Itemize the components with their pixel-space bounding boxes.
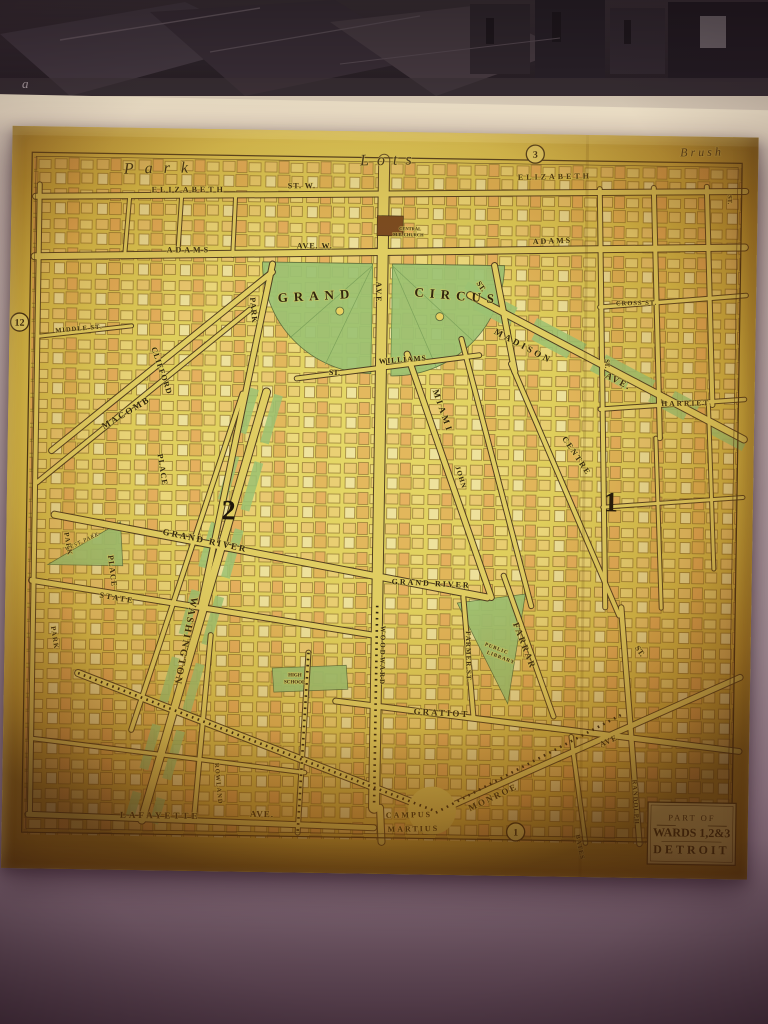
detroit-ward-map-canvas: ParkLotsBrushELIZABETHST. W.ELIZABETHADA… bbox=[1, 126, 759, 880]
gallery-wall: ParkLotsBrushELIZABETHST. W.ELIZABETHADA… bbox=[0, 96, 768, 1024]
cartouche-line2: WARDS 1,2&3 bbox=[653, 825, 731, 840]
street-label: ADAMS bbox=[533, 236, 573, 246]
street-label: Park bbox=[123, 159, 199, 177]
street-label: ST. bbox=[603, 359, 610, 369]
street-label: ELIZABETH bbox=[518, 171, 592, 181]
street-label: AVE bbox=[374, 282, 383, 304]
street-label: ELIZABETH bbox=[152, 185, 226, 194]
street-label: SCHOOL bbox=[284, 680, 306, 685]
street-label: ADAMS bbox=[167, 245, 211, 254]
circled-number: 12 bbox=[10, 313, 28, 331]
street-label: Lots bbox=[359, 151, 420, 169]
rooftops-photo: a bbox=[0, 0, 768, 96]
photo-of-detroit-ward-map-on-wall: a ParkLotsBrushELIZABETHST. W.ELIZABETHA… bbox=[0, 0, 768, 1024]
park-fountain bbox=[436, 313, 444, 321]
circled-number: 3 bbox=[526, 145, 544, 163]
cartouche-line3: DETROIT bbox=[653, 842, 730, 857]
street-label: HARRIET bbox=[661, 398, 710, 408]
street-label: ST. bbox=[726, 195, 733, 205]
street bbox=[379, 808, 382, 842]
street-label: HIGH bbox=[288, 673, 302, 678]
street-label: LAFAYETTE bbox=[120, 810, 201, 821]
street-label: FARMER ST. bbox=[464, 631, 473, 683]
map-artwork: ParkLotsBrushELIZABETHST. W.ELIZABETHADA… bbox=[1, 126, 759, 880]
rooftops-illustration bbox=[0, 0, 768, 96]
circled-number-text: 12 bbox=[15, 318, 25, 329]
graffiti-mark: a bbox=[22, 76, 29, 92]
street-label: ST. bbox=[329, 368, 340, 377]
street-label: CAMPUS bbox=[386, 810, 432, 820]
street-label: AVE. W. bbox=[297, 241, 333, 250]
street-label: CROSS ST. bbox=[616, 300, 658, 308]
street-label: CENTRAL bbox=[399, 226, 421, 231]
street-label: WOODWARD bbox=[378, 626, 387, 686]
circled-number: 1 bbox=[507, 823, 525, 841]
street-label: Brush bbox=[680, 145, 724, 160]
title-cartouche: PART OFWARDS 1,2&3DETROIT bbox=[647, 802, 736, 865]
street-label: AVE. bbox=[250, 809, 274, 819]
cartouche-line1: PART OF bbox=[668, 812, 715, 823]
circled-number-text: 3 bbox=[533, 150, 538, 161]
ward-numeral: 2 bbox=[221, 495, 235, 526]
street-label: MARTIUS bbox=[388, 824, 440, 834]
ward-numeral: 1 bbox=[604, 487, 618, 518]
street-label: ST. W. bbox=[288, 181, 316, 190]
park-fountain bbox=[336, 307, 344, 315]
street-label: M.E. CHURCH bbox=[393, 232, 424, 237]
circled-number-text: 1 bbox=[513, 827, 518, 838]
